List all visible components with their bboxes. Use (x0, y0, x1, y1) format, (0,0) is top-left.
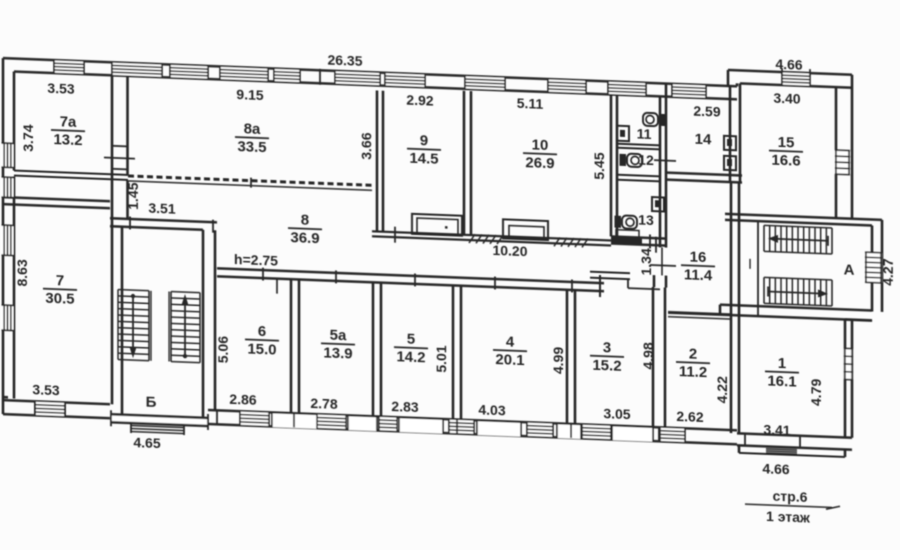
svg-text:I: I (748, 256, 752, 273)
svg-text:2.78: 2.78 (310, 395, 337, 412)
svg-text:2.83: 2.83 (391, 398, 418, 415)
svg-text:3.40: 3.40 (773, 90, 800, 107)
svg-text:4.66: 4.66 (762, 460, 789, 477)
svg-text:4.65: 4.65 (133, 434, 160, 451)
svg-text:16.6: 16.6 (771, 152, 800, 170)
svg-text:15: 15 (778, 134, 795, 152)
svg-text:11.2: 11.2 (679, 363, 707, 381)
svg-text:12: 12 (638, 152, 654, 169)
svg-text:5.11: 5.11 (517, 95, 544, 112)
svg-text:8: 8 (301, 212, 309, 229)
svg-text:9.15: 9.15 (236, 86, 263, 103)
svg-text:7а: 7а (60, 113, 77, 131)
svg-text:3.05: 3.05 (603, 405, 630, 422)
svg-text:2.86: 2.86 (229, 391, 256, 408)
svg-text:4.22: 4.22 (714, 376, 730, 404)
svg-text:1.34: 1.34 (638, 248, 654, 276)
svg-text:1.45: 1.45 (125, 182, 141, 210)
svg-text:3.51: 3.51 (148, 200, 175, 217)
svg-text:2: 2 (689, 345, 697, 362)
svg-text:14.2: 14.2 (396, 348, 425, 366)
svg-text:1 этаж: 1 этаж (766, 508, 811, 526)
svg-text:5а: 5а (330, 327, 347, 345)
svg-text:4.98: 4.98 (640, 342, 656, 370)
svg-text:4.99: 4.99 (550, 346, 566, 374)
svg-text:4.03: 4.03 (478, 401, 505, 418)
svg-text:5.01: 5.01 (433, 345, 449, 373)
svg-text:10.20: 10.20 (492, 242, 527, 259)
svg-text:3.66: 3.66 (358, 132, 374, 160)
svg-text:4.79: 4.79 (808, 378, 824, 406)
svg-text:10: 10 (532, 136, 549, 154)
svg-text:3.53: 3.53 (32, 381, 59, 398)
svg-text:36.9: 36.9 (290, 229, 319, 247)
svg-text:33.5: 33.5 (237, 138, 266, 156)
svg-text:8а: 8а (244, 120, 261, 138)
svg-text:Б: Б (146, 394, 157, 411)
svg-text:2.59: 2.59 (693, 103, 720, 120)
svg-text:15.2: 15.2 (592, 357, 621, 375)
svg-text:4: 4 (506, 333, 515, 350)
svg-text:13.9: 13.9 (323, 344, 352, 362)
svg-text:3: 3 (603, 339, 611, 356)
svg-text:26.9: 26.9 (525, 154, 554, 172)
svg-text:2.92: 2.92 (406, 92, 433, 109)
svg-text:4.66: 4.66 (775, 56, 802, 73)
svg-text:5.06: 5.06 (215, 335, 231, 363)
svg-text:5: 5 (407, 331, 415, 348)
svg-text:6: 6 (258, 323, 266, 340)
svg-text:9: 9 (420, 132, 428, 149)
svg-text:7: 7 (56, 272, 64, 289)
svg-text:3.53: 3.53 (47, 80, 74, 97)
svg-text:14.5: 14.5 (409, 150, 438, 168)
svg-text:1: 1 (778, 355, 786, 372)
svg-text:8.63: 8.63 (14, 259, 30, 287)
svg-text:стр.6: стр.6 (773, 488, 808, 505)
svg-text:30.5: 30.5 (45, 290, 74, 308)
svg-text:13: 13 (638, 212, 654, 229)
svg-text:20.1: 20.1 (495, 351, 524, 369)
svg-text:2.62: 2.62 (676, 408, 703, 425)
svg-text:11: 11 (637, 125, 652, 142)
svg-text:3.41: 3.41 (763, 421, 790, 438)
svg-text:16: 16 (690, 248, 707, 266)
svg-text:3.74: 3.74 (20, 124, 36, 152)
svg-text:26.35: 26.35 (327, 52, 362, 69)
svg-text:А: А (844, 261, 855, 278)
svg-text:15.0: 15.0 (247, 341, 276, 359)
svg-text:h=2.75: h=2.75 (234, 251, 278, 269)
svg-text:14: 14 (695, 131, 712, 149)
svg-text:11.4: 11.4 (684, 266, 713, 284)
svg-text:16.1: 16.1 (767, 372, 796, 390)
svg-text:5.45: 5.45 (591, 152, 607, 180)
svg-text:13.2: 13.2 (53, 131, 82, 149)
svg-text:4.27: 4.27 (880, 258, 896, 286)
